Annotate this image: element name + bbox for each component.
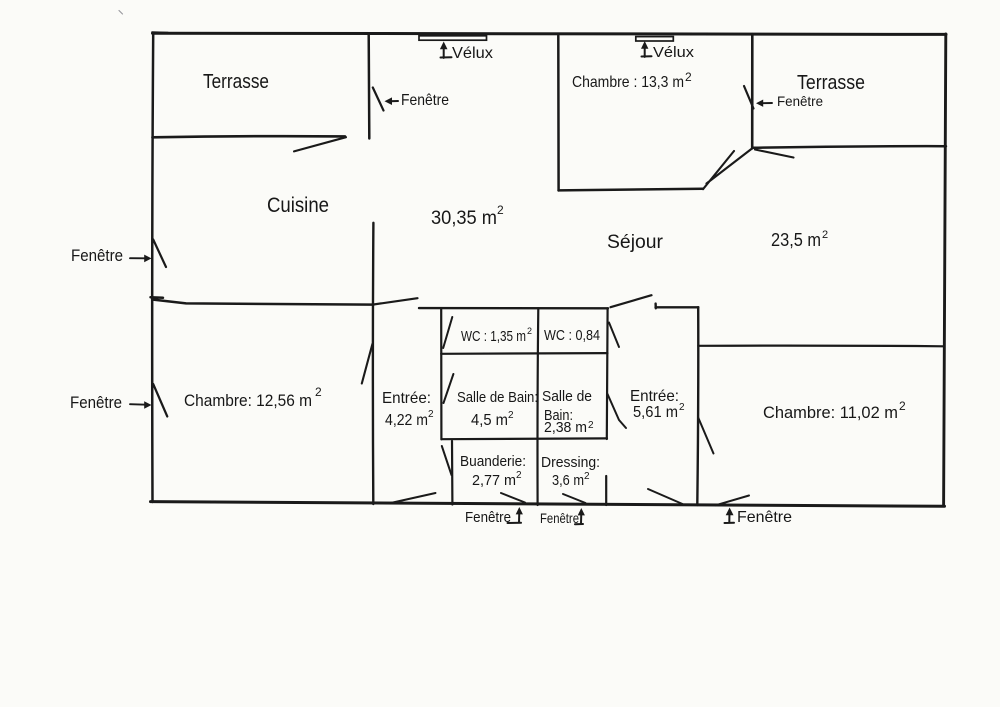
svg-text:Fenêtre: Fenêtre <box>465 509 511 526</box>
svg-text:Fenêtre: Fenêtre <box>737 509 792 526</box>
svg-text:Salle de: Salle de <box>542 388 592 405</box>
svg-text:2: 2 <box>527 326 532 336</box>
svg-text:3,6 m: 3,6 m <box>552 472 584 489</box>
svg-text:2: 2 <box>685 70 692 84</box>
svg-text:2: 2 <box>584 471 590 482</box>
svg-text:Chambre: 11,02 m: Chambre: 11,02 m <box>763 403 898 422</box>
svg-text:Terrasse: Terrasse <box>203 71 269 93</box>
svg-text:WC : 1,35 m: WC : 1,35 m <box>461 328 526 345</box>
svg-text:2,38 m: 2,38 m <box>544 419 587 436</box>
svg-text:Vélux: Vélux <box>452 45 493 62</box>
svg-text:Fenêtre: Fenêtre <box>777 93 823 109</box>
svg-text:2: 2 <box>428 409 434 420</box>
svg-text:Fenêtre: Fenêtre <box>70 393 122 412</box>
svg-text:Fenêtre: Fenêtre <box>540 510 579 526</box>
svg-text:Entrée:: Entrée: <box>382 390 431 407</box>
svg-text:30,35 m: 30,35 m <box>431 208 497 229</box>
svg-text:2: 2 <box>588 420 594 431</box>
svg-text:2: 2 <box>516 470 522 481</box>
svg-text:23,5 m: 23,5 m <box>771 230 821 250</box>
svg-text:5,61 m: 5,61 m <box>633 404 678 421</box>
svg-text:Fenêtre: Fenêtre <box>71 246 123 265</box>
svg-text:4,22 m: 4,22 m <box>385 412 428 429</box>
svg-text:WC : 0,84: WC : 0,84 <box>544 327 600 344</box>
svg-text:2: 2 <box>508 410 514 421</box>
svg-text:Cuisine: Cuisine <box>267 194 329 217</box>
svg-text:Vélux: Vélux <box>653 44 695 61</box>
svg-text:2: 2 <box>497 203 504 217</box>
svg-text:Salle de Bain:: Salle de Bain: <box>457 389 538 406</box>
svg-text:Terrasse: Terrasse <box>797 72 865 94</box>
svg-text:2: 2 <box>679 402 685 413</box>
svg-text:4,5 m: 4,5 m <box>471 412 508 429</box>
svg-text:Fenêtre: Fenêtre <box>401 92 449 109</box>
svg-text:2,77 m: 2,77 m <box>472 472 516 489</box>
svg-text:Dressing:: Dressing: <box>541 454 600 471</box>
svg-text:2: 2 <box>899 399 906 413</box>
svg-text:Chambre : 13,3 m: Chambre : 13,3 m <box>572 74 684 91</box>
svg-text:2: 2 <box>822 229 828 241</box>
svg-text:Buanderie:: Buanderie: <box>460 453 526 470</box>
svg-text:2: 2 <box>315 385 322 399</box>
svg-text:Chambre: 12,56 m: Chambre: 12,56 m <box>184 391 312 410</box>
svg-text:Séjour: Séjour <box>607 232 664 253</box>
svg-text:Entrée:: Entrée: <box>630 388 679 405</box>
